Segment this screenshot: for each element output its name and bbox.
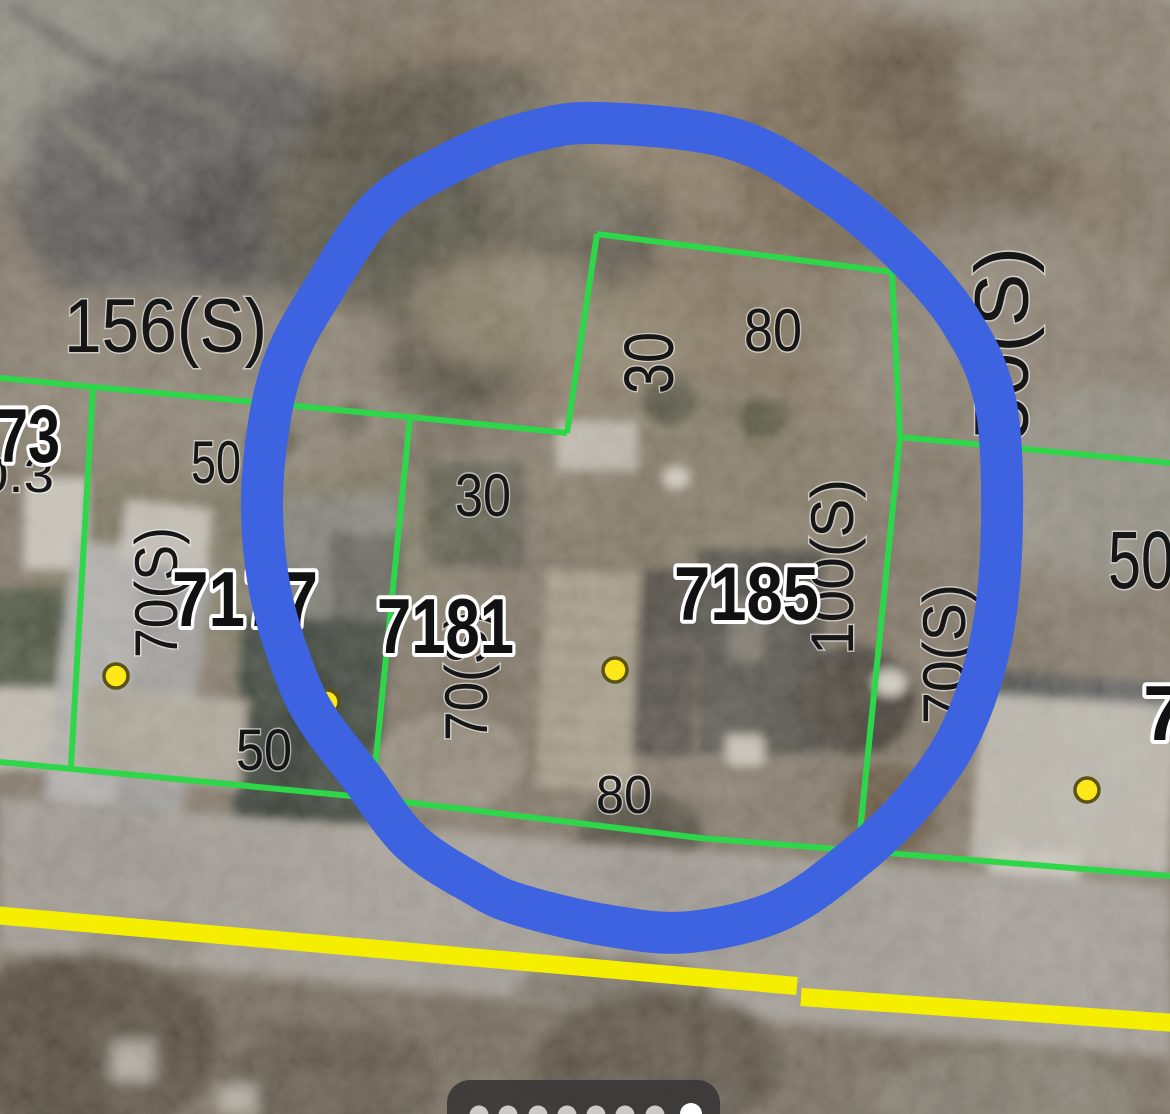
svg-text:73: 73 bbox=[0, 394, 60, 479]
svg-text:7185: 7185 bbox=[674, 552, 819, 637]
svg-text:80: 80 bbox=[596, 765, 652, 825]
svg-text:80: 80 bbox=[744, 297, 802, 364]
svg-text:30: 30 bbox=[455, 462, 511, 529]
svg-text:156(S): 156(S) bbox=[64, 284, 267, 369]
svg-text:7: 7 bbox=[1143, 669, 1170, 757]
svg-text:50: 50 bbox=[1108, 515, 1170, 606]
svg-text:30: 30 bbox=[610, 332, 688, 394]
svg-text:50: 50 bbox=[236, 718, 292, 783]
svg-text:7181: 7181 bbox=[377, 582, 514, 670]
svg-text:50: 50 bbox=[191, 429, 241, 496]
